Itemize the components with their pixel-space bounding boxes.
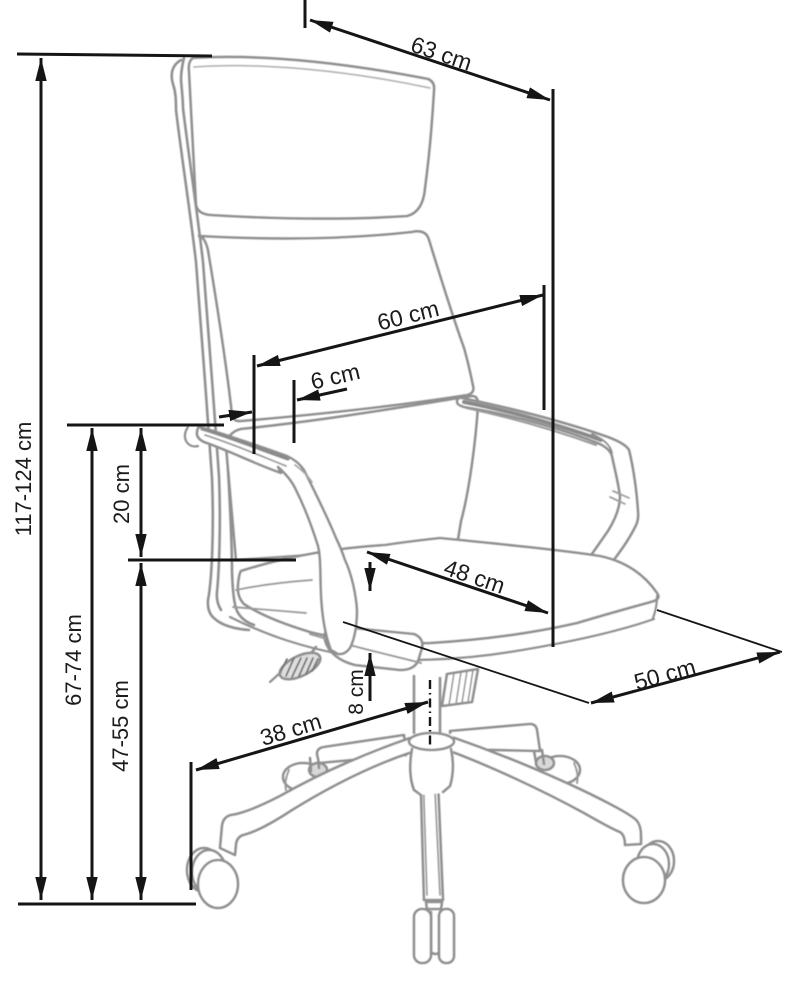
svg-text:20 cm: 20 cm: [109, 464, 134, 524]
svg-text:47-55 cm: 47-55 cm: [108, 680, 133, 772]
svg-text:117-124 cm: 117-124 cm: [11, 422, 36, 537]
svg-text:63 cm: 63 cm: [408, 31, 476, 76]
svg-text:50 cm: 50 cm: [631, 653, 698, 695]
svg-text:38 cm: 38 cm: [257, 708, 324, 751]
svg-text:8 cm: 8 cm: [345, 669, 368, 715]
svg-text:67-74 cm: 67-74 cm: [61, 614, 86, 706]
